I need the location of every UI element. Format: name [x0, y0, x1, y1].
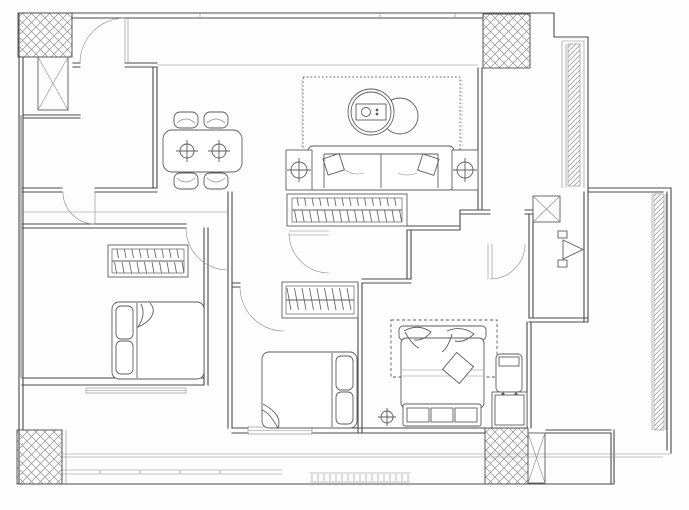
ceiling-lamp — [378, 408, 396, 426]
bed-master — [391, 320, 497, 408]
wardrobe-hall — [287, 194, 407, 226]
wardrobe-mid — [282, 282, 358, 318]
door-north-swing — [80, 18, 128, 63]
door-bath-swing — [488, 244, 525, 279]
door-master-swing — [289, 231, 329, 273]
wardrobe-left — [108, 245, 188, 277]
door-bed-left-swing — [186, 228, 228, 270]
floor-plan — [0, 0, 689, 510]
dining-table — [163, 130, 242, 172]
floor-grate — [310, 473, 410, 482]
bed-left — [112, 302, 204, 379]
coffee-tables — [348, 89, 418, 135]
sofa — [308, 146, 454, 190]
stool — [496, 354, 522, 392]
bed-mid — [262, 352, 357, 428]
parapet-strips — [562, 41, 666, 430]
door-bed-mid-swing — [240, 287, 284, 331]
door-kitchen-swing — [63, 192, 95, 224]
floor-plan-canvas — [0, 0, 689, 510]
nightstand-cabinet — [492, 392, 527, 428]
bed-bench — [403, 404, 481, 426]
door-wc-pivot — [558, 231, 583, 267]
